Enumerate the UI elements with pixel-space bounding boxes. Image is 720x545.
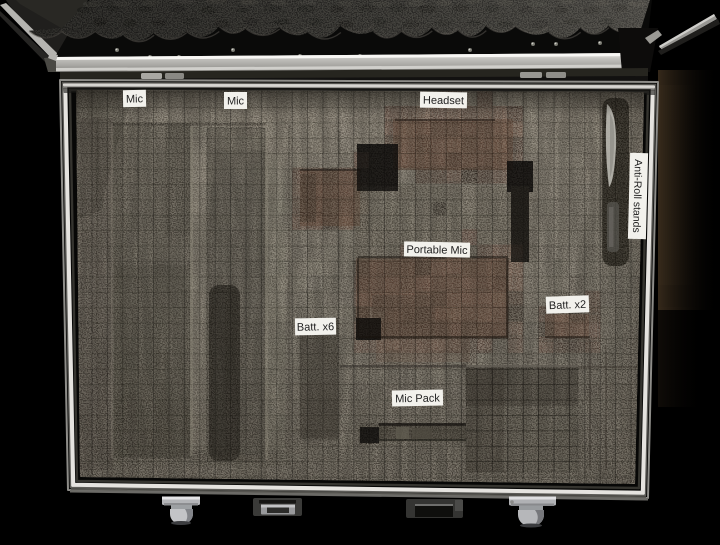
svg-text:Batt. x2: Batt. x2 bbox=[549, 299, 587, 312]
svg-text:Headset: Headset bbox=[423, 95, 464, 108]
svg-text:Batt. x6: Batt. x6 bbox=[297, 321, 335, 334]
svg-text:Mic: Mic bbox=[126, 93, 144, 105]
svg-text:Anti-Roll stands: Anti-Roll stands bbox=[630, 159, 644, 233]
svg-text:Mic: Mic bbox=[227, 95, 245, 107]
svg-text:Mic Pack: Mic Pack bbox=[395, 393, 440, 406]
svg-text:Portable Mic: Portable Mic bbox=[406, 244, 468, 257]
